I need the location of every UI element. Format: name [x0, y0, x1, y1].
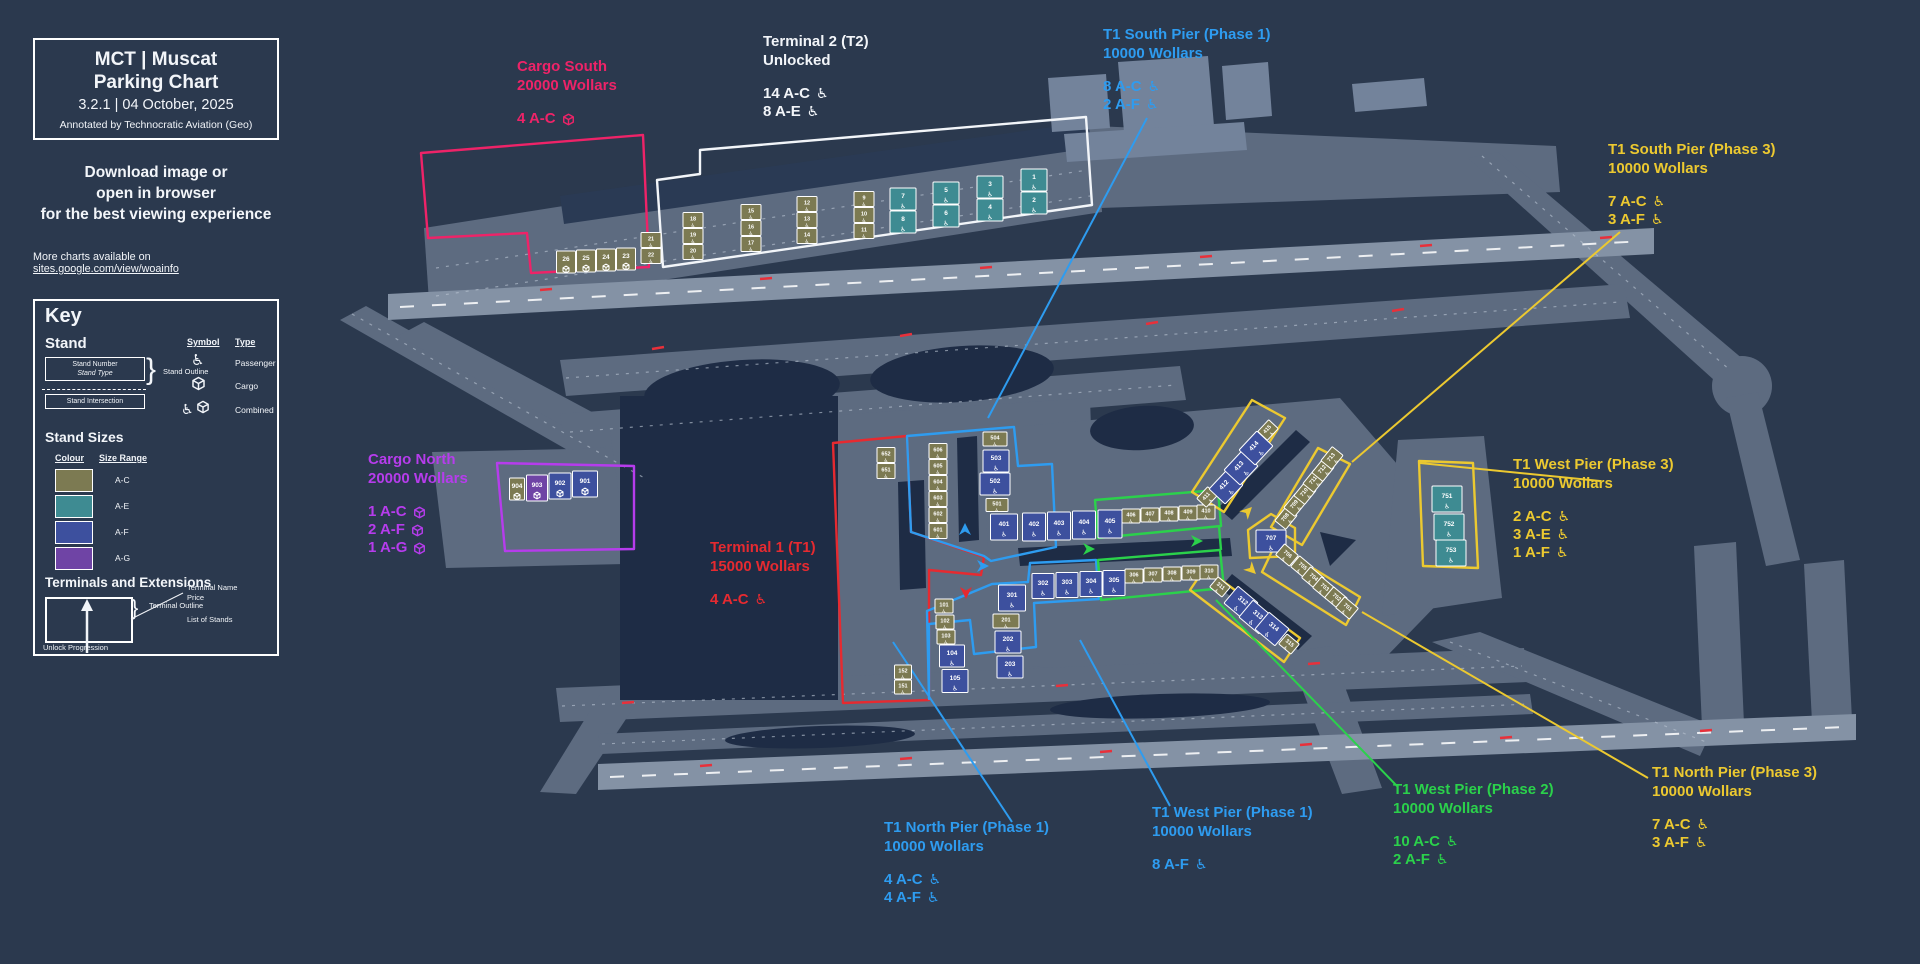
- svg-text:18: 18: [690, 217, 696, 223]
- stand-303: 303♿: [1056, 573, 1078, 598]
- map-shape: [1048, 74, 1110, 132]
- info-panel: MCT | Muscat Parking Chart 3.2.1 | 04 Oc…: [33, 38, 279, 656]
- svg-text:♿: ♿: [1009, 602, 1015, 610]
- stand-23: 23: [617, 248, 636, 270]
- stand-22: 22♿: [641, 249, 661, 265]
- title-box: MCT | Muscat Parking Chart 3.2.1 | 04 Oc…: [33, 38, 279, 140]
- stand-201: 201♿: [993, 614, 1019, 630]
- swatch-a-g: [55, 547, 93, 570]
- svg-text:♿: ♿: [936, 502, 940, 508]
- stand-901: 901: [573, 471, 598, 497]
- stand-504: 504♿: [983, 432, 1007, 448]
- svg-text:301: 301: [1007, 592, 1018, 599]
- svg-text:♿: ♿: [1189, 576, 1193, 582]
- size-label-a-c: A-C: [115, 475, 130, 485]
- combined-icon: ♿: [181, 400, 210, 419]
- stand-752: 752♿: [1434, 514, 1464, 540]
- svg-text:♿: ♿: [952, 685, 958, 693]
- svg-text:6: 6: [944, 210, 948, 217]
- svg-text:752: 752: [1444, 521, 1455, 528]
- map-shape: [1352, 78, 1427, 112]
- hold-short-mark: [1308, 663, 1320, 664]
- svg-text:♿: ♿: [1129, 519, 1133, 525]
- svg-text:403: 403: [1054, 520, 1065, 527]
- svg-text:♿: ♿: [749, 247, 753, 253]
- stand-652: 652♿: [877, 448, 895, 464]
- svg-text:901: 901: [580, 478, 591, 485]
- svg-text:903: 903: [532, 482, 543, 489]
- stand-406: 406♿: [1122, 509, 1140, 525]
- stand-12: 12♿: [797, 197, 817, 213]
- svg-text:♿: ♿: [691, 255, 695, 261]
- svg-text:♿: ♿: [1186, 516, 1190, 522]
- svg-text:16: 16: [748, 225, 754, 231]
- svg-text:♿: ♿: [1111, 587, 1117, 595]
- svg-text:25: 25: [582, 255, 590, 262]
- stand-20: 20♿: [683, 245, 703, 261]
- svg-text:♿: ♿: [862, 234, 866, 240]
- stand-409: 409♿: [1179, 506, 1197, 522]
- key-stand-heading: Stand: [45, 335, 87, 352]
- svg-text:401: 401: [999, 521, 1010, 528]
- svg-text:♿: ♿: [901, 690, 905, 696]
- svg-text:602: 602: [933, 512, 942, 518]
- stand-25: 25: [577, 250, 596, 272]
- svg-text:♿: ♿: [995, 508, 999, 514]
- svg-text:103: 103: [941, 634, 950, 640]
- svg-text:♿: ♿: [1005, 646, 1011, 654]
- svg-text:310: 310: [1204, 569, 1213, 575]
- svg-text:♿: ♿: [942, 609, 946, 615]
- svg-text:♿: ♿: [805, 223, 809, 229]
- svg-text:402: 402: [1029, 521, 1040, 528]
- cargo-icon: [191, 376, 206, 396]
- svg-text:603: 603: [933, 496, 942, 502]
- stand-202: 202♿: [995, 631, 1021, 654]
- svg-text:♿: ♿: [649, 259, 653, 265]
- stand-305: 305♿: [1103, 571, 1125, 596]
- svg-text:5: 5: [944, 187, 948, 194]
- stand-14: 14♿: [797, 229, 817, 245]
- svg-text:♿: ♿: [805, 207, 809, 213]
- svg-text:201: 201: [1001, 618, 1010, 624]
- size-label-a-f: A-F: [115, 527, 129, 537]
- svg-text:13: 13: [804, 217, 810, 223]
- key-box: Key Stand Stand Number Stand Type Stand …: [33, 299, 279, 656]
- svg-text:410: 410: [1201, 509, 1210, 515]
- svg-text:♿: ♿: [1446, 531, 1452, 539]
- stand-604: 604♿: [929, 476, 947, 492]
- stand-3: 3♿: [977, 176, 1003, 199]
- key-sizes-heading: Stand Sizes: [45, 429, 124, 445]
- stand-7: 7♿: [890, 188, 916, 211]
- svg-text:308: 308: [1167, 571, 1176, 577]
- key-cargo-label: Cargo: [235, 381, 258, 391]
- stand-13: 13♿: [797, 213, 817, 229]
- svg-text:♿: ♿: [900, 203, 906, 211]
- svg-text:♿: ♿: [993, 465, 999, 473]
- stand-1: 1♿: [1021, 169, 1047, 192]
- stand-307: 307♿: [1144, 568, 1162, 584]
- svg-text:902: 902: [555, 480, 566, 487]
- svg-text:651: 651: [881, 468, 890, 474]
- svg-text:♿: ♿: [1001, 531, 1007, 539]
- svg-text:♿: ♿: [936, 534, 940, 540]
- stand-306: 306♿: [1125, 569, 1143, 585]
- stand-105: 105♿: [942, 670, 968, 693]
- stand-903: 903: [527, 475, 548, 501]
- svg-text:502: 502: [990, 478, 1001, 485]
- stand-301: 301♿: [999, 585, 1026, 611]
- svg-text:24: 24: [602, 254, 610, 261]
- svg-text:307: 307: [1148, 572, 1157, 578]
- svg-text:101: 101: [939, 603, 948, 609]
- hold-short-mark: [1300, 744, 1312, 745]
- svg-text:10: 10: [861, 212, 867, 218]
- svg-text:152: 152: [898, 669, 907, 675]
- svg-text:♿: ♿: [862, 202, 866, 208]
- svg-text:♿: ♿: [936, 486, 940, 492]
- svg-text:605: 605: [933, 464, 942, 470]
- svg-text:606: 606: [933, 448, 942, 454]
- svg-text:♿: ♿: [1031, 531, 1037, 539]
- key-stand-number-label: Stand Number: [46, 360, 144, 369]
- stand-101: 101♿: [935, 599, 953, 615]
- chart-title: MCT | Muscat Parking Chart: [39, 48, 273, 94]
- key-unlock-progression-label: Unlock Progression: [43, 643, 108, 652]
- stand-402: 402♿: [1023, 513, 1046, 541]
- svg-text:21: 21: [648, 237, 654, 243]
- stand-152: 152♿: [895, 665, 912, 681]
- svg-text:♿: ♿: [900, 226, 906, 234]
- svg-text:♿: ♿: [691, 223, 695, 229]
- stand-302: 302♿: [1032, 574, 1054, 599]
- svg-text:104: 104: [947, 650, 958, 657]
- stand-19: 19♿: [683, 229, 703, 245]
- svg-text:♿: ♿: [943, 197, 949, 205]
- stand-902: 902: [549, 473, 571, 499]
- stand-5: 5♿: [933, 182, 959, 205]
- svg-text:904: 904: [512, 483, 523, 490]
- stand-203: 203♿: [997, 656, 1023, 679]
- svg-text:♿: ♿: [1148, 518, 1152, 524]
- stand-26: 26: [557, 251, 576, 273]
- hold-short-mark: [1500, 737, 1512, 738]
- svg-text:22: 22: [648, 253, 654, 259]
- swatch-a-c: [55, 469, 93, 492]
- stand-308: 308♿: [1163, 567, 1181, 583]
- map-shape: [1118, 56, 1214, 132]
- stand-904: 904: [510, 478, 525, 500]
- svg-text:7: 7: [901, 193, 905, 200]
- svg-text:14: 14: [804, 233, 811, 239]
- size-label-a-g: A-G: [115, 553, 130, 563]
- svg-text:504: 504: [990, 436, 1000, 442]
- svg-text:♿: ♿: [884, 474, 888, 480]
- hold-short-mark: [652, 347, 664, 349]
- map-shape: [620, 396, 838, 700]
- stand-405: 405♿: [1098, 510, 1122, 538]
- key-combined-label: Combined: [235, 405, 274, 415]
- stand-4: 4♿: [977, 199, 1003, 222]
- svg-text:309: 309: [1186, 570, 1195, 576]
- stand-24: 24: [597, 249, 616, 271]
- svg-text:♿: ♿: [1204, 515, 1208, 521]
- svg-text:11: 11: [861, 228, 867, 234]
- stand-104: 104♿: [940, 645, 965, 668]
- chart-version: 3.2.1 | 04 October, 2025: [39, 97, 273, 113]
- stand-310: 310♿: [1200, 565, 1218, 581]
- hold-short-mark: [1700, 730, 1712, 731]
- svg-text:4: 4: [988, 204, 992, 211]
- hold-short-mark: [1100, 751, 1112, 752]
- svg-text:♿: ♿: [1064, 589, 1070, 597]
- map-shape: [1804, 560, 1852, 722]
- svg-text:1: 1: [1032, 174, 1036, 181]
- map-shape: [957, 436, 979, 542]
- svg-text:408: 408: [1164, 511, 1173, 517]
- stand-2: 2♿: [1021, 192, 1047, 215]
- key-symbol-col: Symbol: [187, 337, 220, 347]
- svg-text:23: 23: [622, 253, 630, 260]
- stand-309: 309♿: [1182, 566, 1200, 582]
- svg-text:105: 105: [950, 675, 961, 682]
- svg-text:20: 20: [690, 249, 696, 255]
- svg-text:♿: ♿: [749, 231, 753, 237]
- svg-text:♿: ♿: [749, 215, 753, 221]
- more-charts-prefix: More charts available on: [33, 251, 151, 263]
- svg-text:♿: ♿: [1151, 578, 1155, 584]
- stand-601: 601♿: [929, 524, 947, 540]
- svg-text:♿: ♿: [943, 220, 949, 228]
- svg-text:♿: ♿: [936, 454, 940, 460]
- svg-text:15: 15: [748, 209, 754, 215]
- svg-text:♿: ♿: [987, 191, 993, 199]
- svg-text:♿: ♿: [1132, 579, 1136, 585]
- svg-text:♿: ♿: [1056, 530, 1062, 538]
- size-label-a-e: A-E: [115, 501, 129, 511]
- svg-text:♿: ♿: [1268, 545, 1274, 553]
- svg-text:8: 8: [901, 216, 905, 223]
- more-charts-note: More charts available on sites.google.co…: [33, 251, 279, 275]
- stand-18: 18♿: [683, 213, 703, 229]
- stand-11: 11♿: [854, 224, 874, 240]
- key-size-range-col: Size Range: [99, 453, 147, 463]
- svg-text:3: 3: [988, 181, 992, 188]
- key-stand-type-label: Stand Type: [46, 369, 144, 378]
- stand-503: 503♿: [983, 450, 1009, 473]
- svg-text:♿: ♿: [1031, 184, 1037, 192]
- passenger-icon: ♿: [191, 351, 204, 370]
- svg-text:♿: ♿: [1170, 577, 1174, 583]
- svg-text:♿: ♿: [936, 470, 940, 476]
- key-terminal-outline-label: Terminal Outline: [149, 601, 203, 610]
- stand-401: 401♿: [991, 514, 1018, 540]
- svg-text:604: 604: [933, 480, 943, 486]
- svg-text:501: 501: [992, 502, 1001, 508]
- svg-text:♿: ♿: [649, 243, 653, 249]
- hold-short-mark: [1200, 256, 1212, 257]
- svg-text:♿: ♿: [1081, 529, 1087, 537]
- svg-text:303: 303: [1062, 579, 1073, 586]
- svg-text:151: 151: [898, 684, 907, 690]
- svg-text:406: 406: [1126, 513, 1135, 519]
- stand-404: 404♿: [1073, 511, 1096, 539]
- stand-6: 6♿: [933, 205, 959, 228]
- stand-17: 17♿: [741, 237, 761, 253]
- svg-text:405: 405: [1105, 518, 1116, 525]
- svg-text:404: 404: [1079, 519, 1090, 526]
- svg-text:203: 203: [1005, 661, 1016, 668]
- key-heading: Key: [45, 305, 82, 328]
- svg-text:304: 304: [1086, 578, 1097, 585]
- hold-short-mark: [1056, 685, 1068, 686]
- stand-753: 753♿: [1436, 540, 1466, 566]
- stand-9: 9♿: [854, 192, 874, 208]
- stand-603: 603♿: [929, 492, 947, 508]
- stand-outline-brace: }: [146, 355, 156, 385]
- svg-text:♿: ♿: [884, 458, 888, 464]
- swatch-a-e: [55, 495, 93, 518]
- svg-text:♿: ♿: [936, 518, 940, 524]
- hold-short-mark: [622, 702, 634, 703]
- stand-151: 151♿: [895, 680, 912, 696]
- svg-text:♿: ♿: [1007, 671, 1013, 679]
- stand-403: 403♿: [1048, 512, 1071, 540]
- map-shape: [1726, 392, 1800, 566]
- stand-16: 16♿: [741, 221, 761, 237]
- key-stand-intersection-label: Stand Intersection: [46, 397, 144, 406]
- airport-map: 21♿22♿18♿19♿20♿15♿16♿17♿12♿13♿14♿9♿10♿11…: [0, 0, 1920, 964]
- svg-text:707: 707: [1266, 535, 1277, 542]
- viewing-note: Download image or open in browser for th…: [33, 162, 279, 225]
- svg-text:202: 202: [1003, 636, 1014, 643]
- svg-text:306: 306: [1129, 573, 1138, 579]
- key-stand-divider: [42, 389, 146, 390]
- key-colour-col: Colour: [55, 453, 84, 463]
- parking-chart: 21♿22♿18♿19♿20♿15♿16♿17♿12♿13♿14♿9♿10♿11…: [0, 0, 1920, 964]
- stand-408: 408♿: [1160, 507, 1178, 523]
- svg-text:♿: ♿: [691, 239, 695, 245]
- stand-304: 304♿: [1080, 572, 1102, 597]
- key-price-label: Price: [187, 593, 204, 602]
- svg-text:751: 751: [1442, 493, 1453, 500]
- stand-102: 102♿: [936, 615, 954, 631]
- svg-text:407: 407: [1145, 512, 1154, 518]
- stand-8: 8♿: [890, 211, 916, 234]
- hold-short-mark: [980, 267, 992, 268]
- terminal-outline-brace: }: [131, 593, 138, 623]
- svg-text:♿: ♿: [992, 488, 998, 496]
- stand-602: 602♿: [929, 508, 947, 524]
- svg-text:102: 102: [940, 619, 949, 625]
- svg-text:♿: ♿: [1444, 503, 1450, 511]
- svg-text:♿: ♿: [1107, 528, 1113, 536]
- svg-text:9: 9: [862, 196, 865, 202]
- stand-501: 501♿: [986, 499, 1008, 514]
- hold-short-mark: [540, 289, 552, 290]
- key-stand-sample: Stand Number Stand Type: [45, 357, 145, 381]
- svg-text:503: 503: [991, 455, 1002, 462]
- stand-15: 15♿: [741, 205, 761, 221]
- stand-502: 502♿: [980, 473, 1010, 496]
- svg-text:♿: ♿: [1167, 517, 1171, 523]
- svg-text:17: 17: [748, 241, 754, 247]
- key-type-col: Type: [235, 337, 255, 347]
- map-shape: [1222, 62, 1272, 120]
- stand-651: 651♿: [877, 464, 895, 480]
- hold-short-mark: [1600, 237, 1612, 238]
- stand-103: 103♿: [937, 630, 955, 646]
- key-passenger-label: Passenger: [235, 358, 276, 368]
- charts-link[interactable]: sites.google.com/view/woainfo: [33, 263, 179, 275]
- svg-text:♿: ♿: [1448, 557, 1454, 565]
- stand-751: 751♿: [1432, 486, 1462, 512]
- svg-text:♿: ♿: [862, 218, 866, 224]
- hold-short-mark: [760, 278, 772, 279]
- hold-short-mark: [900, 758, 912, 759]
- map-shape: [1694, 542, 1744, 727]
- key-stand-intersection-box: Stand Intersection: [45, 394, 145, 409]
- svg-text:♿: ♿: [987, 214, 993, 222]
- svg-text:♿: ♿: [1040, 590, 1046, 598]
- stand-10: 10♿: [854, 208, 874, 224]
- svg-text:♿: ♿: [993, 442, 997, 448]
- svg-text:♿: ♿: [1088, 588, 1094, 596]
- stand-407: 407♿: [1141, 508, 1159, 524]
- svg-text:12: 12: [804, 201, 810, 207]
- svg-text:409: 409: [1183, 510, 1192, 516]
- svg-text:♿: ♿: [1004, 624, 1008, 630]
- annotated-by: Annotated by Technocratic Aviation (Geo): [39, 119, 273, 131]
- svg-text:♿: ♿: [949, 660, 955, 668]
- swatch-a-f: [55, 521, 93, 544]
- svg-text:652: 652: [881, 452, 890, 458]
- stand-605: 605♿: [929, 460, 947, 476]
- svg-text:♿: ♿: [805, 239, 809, 245]
- svg-text:302: 302: [1038, 580, 1049, 587]
- svg-text:♿: ♿: [1031, 207, 1037, 215]
- stand-21: 21♿: [641, 233, 661, 249]
- svg-text:2: 2: [1032, 197, 1036, 204]
- svg-text:753: 753: [1446, 547, 1457, 554]
- svg-text:♿: ♿: [1207, 575, 1211, 581]
- svg-text:305: 305: [1109, 577, 1120, 584]
- svg-text:19: 19: [690, 233, 696, 239]
- hold-short-mark: [1420, 245, 1432, 246]
- key-terminal-name-label: Terminal Name: [187, 583, 237, 592]
- stand-606: 606♿: [929, 444, 947, 460]
- key-list-of-stands-label: List of Stands: [187, 615, 232, 624]
- hold-short-mark: [700, 765, 712, 766]
- svg-text:601: 601: [933, 528, 942, 534]
- svg-text:26: 26: [562, 256, 570, 263]
